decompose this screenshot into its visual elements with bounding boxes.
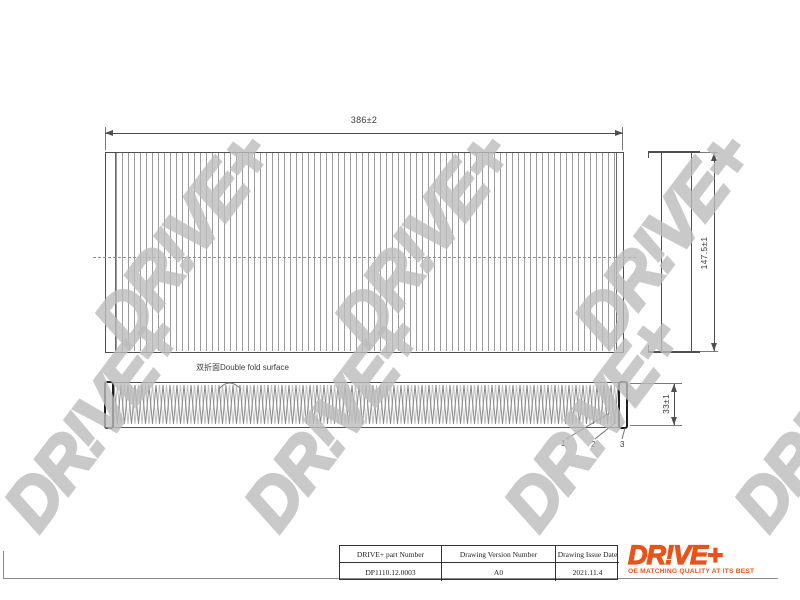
side-view-top-cap-tick	[648, 151, 649, 158]
part-number-header: DRIVE+ part Number	[340, 546, 442, 563]
dim-arrow-left	[105, 130, 113, 136]
part-number-value: DP1110.12.0003	[340, 563, 442, 581]
watermark-text: DR!VE+	[718, 304, 800, 544]
dim-arrow-down	[711, 343, 717, 351]
brand-tagline: OE MATCHING QUALITY AT ITS BEST	[628, 568, 780, 575]
brand-logo: DR!VE+ OE MATCHING QUALITY AT ITS BEST	[628, 542, 780, 575]
width-dimension-line	[105, 133, 623, 134]
dim-arrow-up	[671, 384, 677, 392]
date-header: Drawing Issue Date	[556, 546, 619, 563]
version-value: A0	[442, 563, 556, 581]
double-fold-surface-label: 双折面Double fold surface	[196, 362, 289, 373]
sheet-border-left	[3, 551, 4, 578]
title-block: DRIVE+ part Number Drawing Version Numbe…	[339, 545, 618, 580]
dim-arrow-down	[671, 417, 677, 425]
brand-logo-text: DR!VE+	[628, 542, 780, 568]
drawing-sheet: 386±2 147.5±1 双折面Double fold surface 33±…	[0, 0, 800, 600]
width-dimension-label: 386±2	[324, 115, 404, 125]
version-header: Drawing Version Number	[442, 546, 556, 563]
dim-extension-line	[700, 351, 718, 352]
dim-arrow-right	[615, 130, 623, 136]
date-value: 2021.11.4	[556, 563, 619, 581]
